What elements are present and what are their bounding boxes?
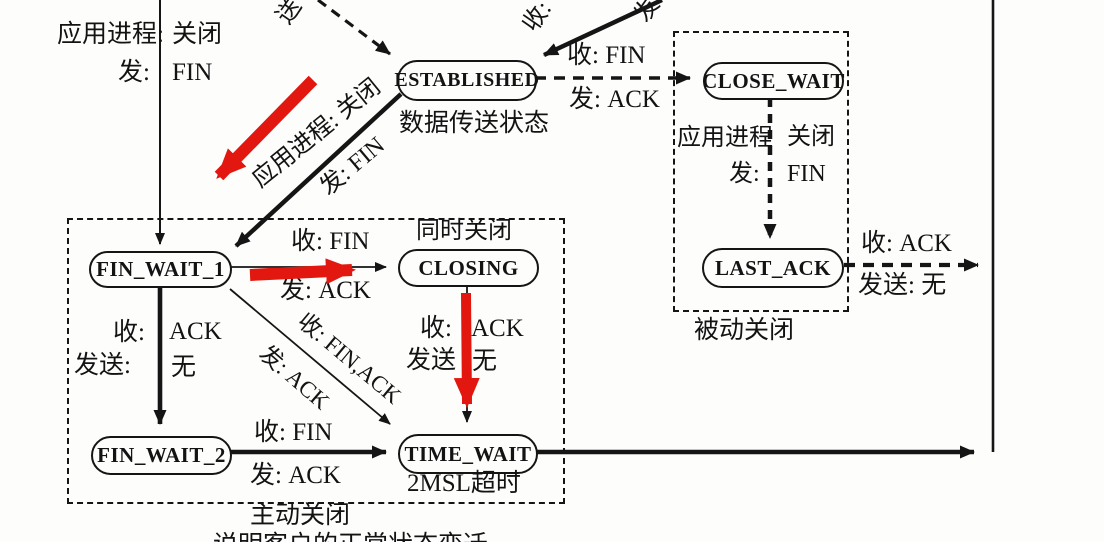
red-arrow-fin-wait-1-to-closing [250,270,352,275]
tcp-state-diagram: ESTABLISHED CLOSE_WAIT FIN_WAIT_1 CLOSIN… [0,0,1104,542]
red-arrow-closing-to-time-wait [466,293,467,404]
red-highlight-arrows-layer [0,0,1104,542]
red-arrow-to-fin-wait-1 [219,80,313,176]
